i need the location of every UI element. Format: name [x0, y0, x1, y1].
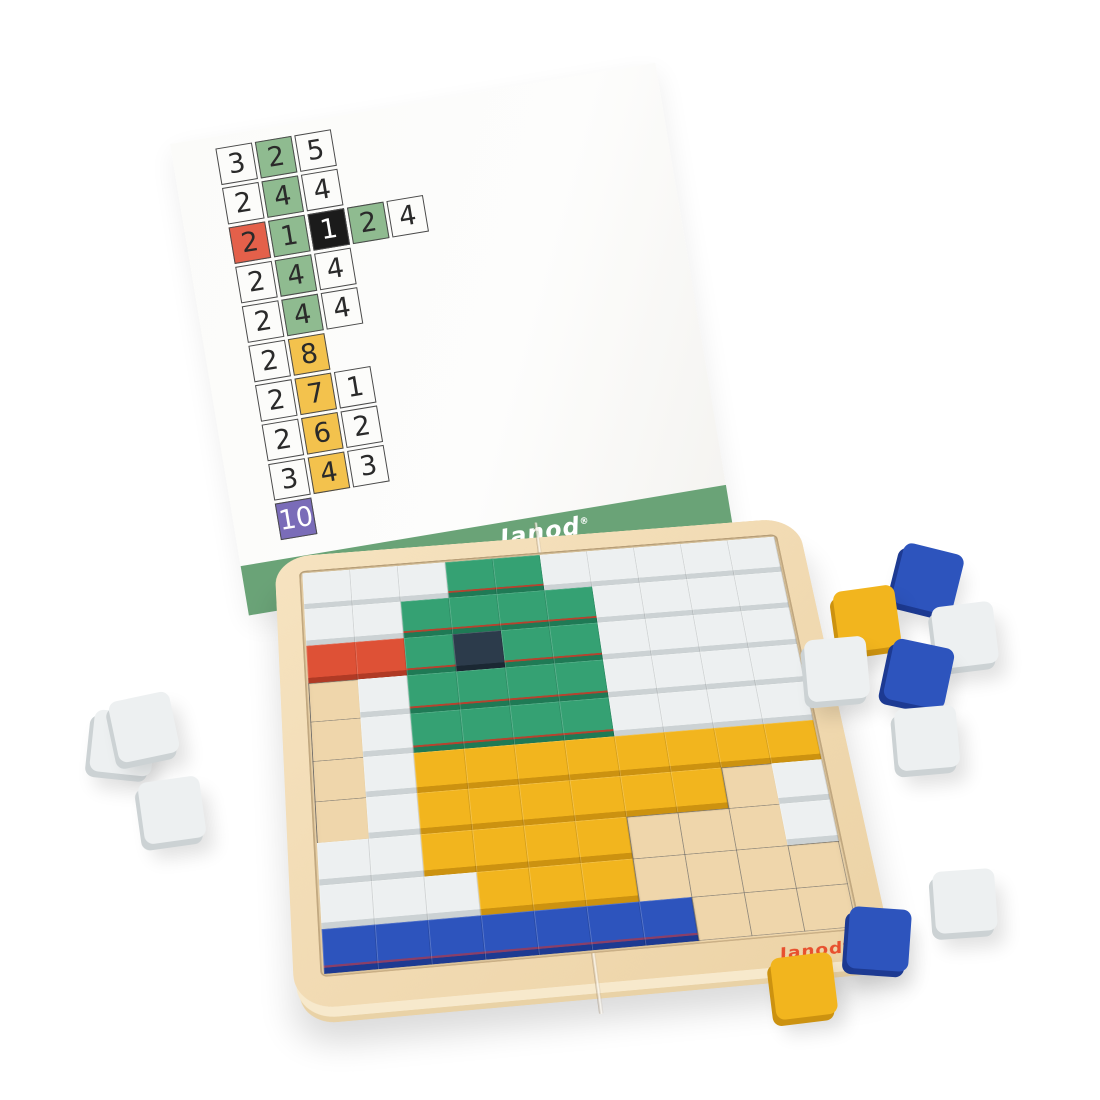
board-tile-Y: [575, 817, 632, 863]
card-cell-white: 3: [268, 458, 311, 501]
card-cell-purple: 10: [275, 498, 318, 541]
card-cell-red: 2: [229, 221, 272, 264]
card-cell-black: 1: [307, 208, 350, 251]
board-tile-G: [501, 626, 554, 667]
board-tile-W: [609, 693, 665, 736]
board-tile-Y: [414, 749, 468, 793]
card-cell-white: 4: [321, 287, 364, 330]
loose-tile-B: [882, 637, 956, 711]
card-cell-green: 2: [347, 202, 390, 245]
card-cell-white: 4: [314, 248, 357, 291]
board-tile-W: [634, 544, 687, 583]
card-cell-yellow: 4: [308, 451, 351, 494]
card-cell-white: 2: [242, 300, 285, 343]
board-tile-G: [492, 555, 544, 594]
card-cell-white: 2: [222, 182, 265, 225]
board-tile-G: [445, 559, 497, 598]
card-cell-white: 2: [235, 261, 278, 304]
board-tile-G: [410, 710, 464, 753]
board-scene: Janod®: [274, 517, 894, 1010]
card-cell-yellow: 7: [294, 373, 337, 416]
card-cell-white: 2: [255, 379, 298, 422]
board-tile-B: [481, 911, 539, 960]
empty-cell: [626, 812, 684, 858]
empty-cell: [796, 883, 857, 931]
empty-cell: [721, 763, 779, 808]
board-tile-Y: [714, 724, 771, 768]
board-tile-G: [510, 701, 565, 744]
board-tile-B: [428, 915, 485, 964]
loose-tile-W: [107, 690, 181, 764]
board-tile-W: [317, 839, 372, 886]
board-tile-W: [741, 607, 797, 648]
board-tile-W: [749, 644, 805, 685]
board-tile-W: [779, 800, 838, 846]
loose-tile-W: [137, 775, 207, 845]
board-tile-W: [700, 648, 756, 690]
empty-cell: [312, 757, 365, 802]
card-cell-green: 4: [281, 294, 324, 337]
board-tile-G: [505, 664, 559, 706]
card-cell-green: 4: [275, 254, 318, 297]
wooden-board: Janod®: [274, 517, 894, 1010]
board-tile-G: [404, 634, 456, 675]
board-tile-Y: [581, 859, 639, 906]
card-cell-white: 1: [334, 366, 377, 409]
board-tile-W: [687, 575, 741, 615]
board-tile-Y: [477, 868, 534, 916]
card-cell-white: 2: [262, 419, 305, 462]
board-tile-W: [694, 611, 749, 652]
board-tile-B: [534, 906, 593, 955]
board-tile-W: [366, 793, 421, 839]
card-cell-white: 3: [215, 142, 258, 185]
board-tile-W: [681, 540, 735, 579]
board-tile-R: [355, 638, 407, 679]
board-tile-G: [456, 667, 510, 709]
empty-cell: [310, 718, 363, 761]
loose-tile-B: [846, 906, 912, 972]
board-tile-W: [771, 759, 830, 804]
board-tile-W: [372, 877, 428, 925]
board-tile-R: [306, 642, 357, 683]
board-tile-W: [353, 602, 404, 642]
board-tile-W: [597, 619, 651, 660]
board-tile-W: [369, 834, 424, 881]
board-tile-Y: [620, 772, 677, 817]
empty-cell: [308, 679, 360, 721]
board-tile-W: [398, 562, 449, 601]
board-tile-Y: [472, 826, 528, 873]
empty-cell: [691, 892, 751, 940]
card-cell-green: 2: [255, 136, 298, 179]
board-tile-G: [559, 697, 614, 740]
board-tile-B: [639, 897, 699, 946]
board-tile-Y: [664, 728, 721, 772]
board-tile-Y: [764, 720, 822, 764]
empty-cell: [736, 845, 796, 892]
board-tile-G: [497, 590, 550, 630]
board-tile-W: [302, 570, 352, 610]
board-tile-W: [350, 566, 401, 605]
card-cell-green: 4: [261, 175, 304, 218]
board-tile-G: [549, 623, 603, 664]
board-tile-W: [734, 572, 789, 612]
board-tile-Y: [671, 768, 729, 813]
board-tile-G: [401, 598, 453, 638]
board-tile-K: [452, 630, 505, 671]
board-tile-W: [640, 579, 694, 619]
board-tile-B: [586, 902, 645, 951]
board-tile-G: [544, 587, 597, 627]
loose-tile-W: [893, 704, 960, 771]
board-tile-W: [363, 753, 417, 797]
board-tile-W: [360, 714, 413, 757]
card-cell-white: 2: [340, 405, 383, 448]
card-cell-white: 4: [301, 169, 344, 212]
board-tile-W: [756, 681, 813, 724]
board-tile-B: [322, 925, 378, 974]
board-tile-G: [460, 706, 514, 749]
board-tile-Y: [570, 776, 627, 821]
board-tile-Y: [614, 732, 670, 776]
empty-cell: [633, 854, 692, 901]
board-tile-Y: [564, 736, 620, 780]
board-tile-W: [646, 615, 701, 656]
board-tile-W: [319, 881, 375, 929]
board-tile-W: [587, 548, 640, 587]
empty-cell: [315, 797, 369, 843]
empty-cell: [787, 841, 847, 888]
board-tile-W: [592, 583, 645, 623]
board-tile-W: [358, 675, 411, 717]
board-tile-Y: [529, 863, 587, 911]
empty-cell: [728, 804, 787, 850]
empty-cell: [677, 808, 735, 854]
card-cell-white: 5: [294, 129, 337, 172]
board-tile-G: [407, 671, 460, 713]
card-cell-white: 4: [386, 195, 429, 238]
card-number-grid: 325244211242442442827126234310: [215, 116, 475, 543]
card-cell-yellow: 8: [288, 333, 331, 376]
board-tile-W: [304, 605, 355, 645]
board-tile-W: [652, 652, 707, 694]
board-tile-W: [424, 872, 481, 920]
board-tile-G: [449, 594, 501, 634]
empty-cell: [744, 888, 805, 936]
board-tile-Y: [519, 780, 575, 825]
board-tile-Y: [464, 745, 519, 789]
board-tile-B: [375, 920, 432, 969]
card-cell-green: 1: [268, 215, 311, 258]
registered-mark: ®: [579, 516, 591, 528]
board-tile-W: [540, 551, 592, 590]
board-tile-W: [658, 689, 714, 732]
board-tile-G: [554, 660, 608, 702]
loose-tile-W: [803, 635, 870, 702]
product-photo-scene: 325244211242442442827126234310 Janod® Ja…: [0, 0, 1100, 1100]
board-tile-Y: [514, 740, 569, 784]
loose-tile-Y: [769, 951, 838, 1020]
board-recess: [299, 534, 861, 977]
board-tile-W: [707, 685, 764, 728]
card-cell-yellow: 6: [301, 412, 344, 455]
card-cell-white: 3: [347, 445, 390, 488]
board-tile-Y: [417, 789, 472, 834]
board-tile-W: [727, 537, 781, 576]
card-cell-white: 2: [248, 340, 291, 383]
board-tile-W: [603, 656, 658, 698]
loose-tile-W: [932, 868, 998, 934]
board-tile-Y: [421, 830, 477, 877]
board-tile-grid: [302, 537, 857, 974]
board-tile-Y: [524, 821, 581, 867]
board-tile-Y: [468, 785, 524, 830]
empty-cell: [684, 850, 743, 897]
